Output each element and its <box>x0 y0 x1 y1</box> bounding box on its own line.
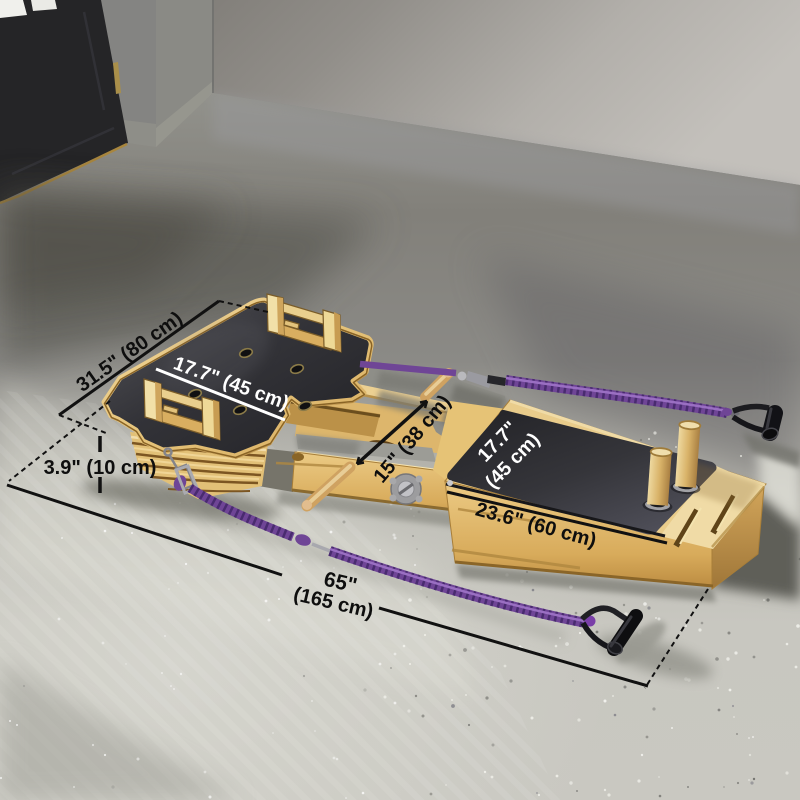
svg-text:3.9" (10 cm): 3.9" (10 cm) <box>44 457 157 479</box>
